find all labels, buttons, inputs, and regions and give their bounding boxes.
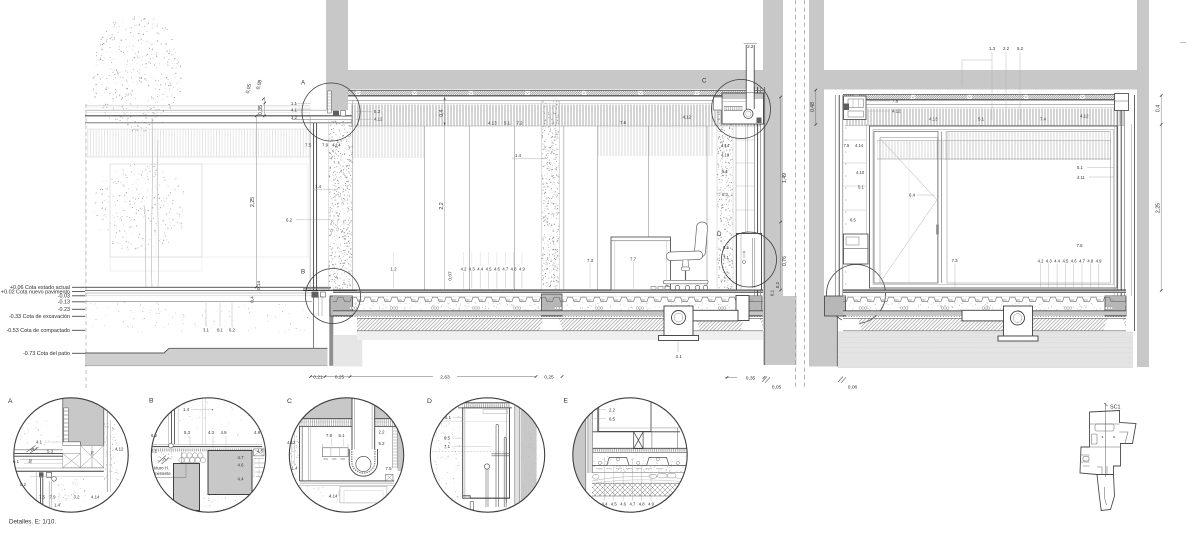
svg-text:0,21: 0,21 bbox=[313, 375, 323, 381]
svg-text:1,49: 1,49 bbox=[782, 173, 788, 183]
svg-text:E: E bbox=[564, 398, 569, 405]
svg-text:4.10: 4.10 bbox=[721, 153, 730, 158]
svg-text:4.8: 4.8 bbox=[1087, 258, 1093, 263]
svg-text:4.4: 4.4 bbox=[477, 266, 483, 271]
svg-text:3.1: 3.1 bbox=[203, 328, 209, 333]
svg-text:0,2: 0,2 bbox=[775, 281, 780, 288]
svg-text:3.2: 3.2 bbox=[74, 495, 81, 500]
svg-text:0,4: 0,4 bbox=[439, 110, 445, 117]
svg-text:5.3: 5.3 bbox=[184, 430, 191, 435]
svg-text:4.5: 4.5 bbox=[257, 448, 264, 453]
svg-text:4.13: 4.13 bbox=[488, 121, 497, 126]
svg-text:4.9: 4.9 bbox=[519, 266, 525, 271]
svg-text:6.2: 6.2 bbox=[229, 328, 235, 333]
svg-text:7.7: 7.7 bbox=[630, 257, 637, 262]
svg-text:0,14: 0,14 bbox=[256, 281, 262, 291]
svg-text:5.3: 5.3 bbox=[374, 109, 381, 114]
svg-text:7.1: 7.1 bbox=[444, 444, 451, 449]
svg-text:4.9: 4.9 bbox=[221, 430, 228, 435]
svg-text:1.4: 1.4 bbox=[515, 153, 522, 158]
svg-text:4.7: 4.7 bbox=[1079, 258, 1085, 263]
svg-text:0,25: 0,25 bbox=[335, 375, 345, 381]
svg-text:4.12: 4.12 bbox=[374, 117, 383, 122]
svg-text:4.6: 4.6 bbox=[620, 501, 626, 506]
svg-text:6.3: 6.3 bbox=[722, 192, 728, 197]
svg-text:C: C bbox=[702, 78, 707, 85]
svg-text:4.1: 4.1 bbox=[36, 440, 43, 445]
svg-text:5.1: 5.1 bbox=[858, 185, 864, 190]
svg-text:4.7: 4.7 bbox=[502, 266, 508, 271]
svg-text:D: D bbox=[427, 398, 432, 405]
svg-text:0,35: 0,35 bbox=[258, 105, 264, 115]
svg-text:4.3: 4.3 bbox=[208, 430, 215, 435]
svg-text:5.1: 5.1 bbox=[504, 121, 511, 126]
svg-text:6.5: 6.5 bbox=[444, 436, 451, 441]
svg-text:2,2: 2,2 bbox=[439, 202, 445, 209]
svg-text:7.2: 7.2 bbox=[517, 121, 524, 126]
svg-text:Detalles. E: 1/10.: Detalles. E: 1/10. bbox=[9, 519, 56, 526]
svg-text:7.6: 7.6 bbox=[620, 120, 627, 125]
svg-text:2.1: 2.1 bbox=[676, 354, 683, 359]
svg-text:2,63: 2,63 bbox=[440, 375, 450, 381]
svg-text:4.8: 4.8 bbox=[639, 501, 645, 506]
svg-text:7.3: 7.3 bbox=[587, 258, 594, 263]
svg-text:7.3: 7.3 bbox=[952, 258, 959, 263]
svg-text:4.6: 4.6 bbox=[1071, 258, 1077, 263]
svg-text:7.6: 7.6 bbox=[1077, 243, 1084, 248]
svg-text:4.3: 4.3 bbox=[469, 266, 475, 271]
svg-text:2.2: 2.2 bbox=[609, 407, 616, 412]
svg-text:4.2: 4.2 bbox=[461, 266, 467, 271]
svg-text:0,4: 0,4 bbox=[250, 296, 256, 303]
svg-text:7.5: 7.5 bbox=[305, 143, 312, 148]
svg-text:4.9: 4.9 bbox=[648, 501, 654, 506]
svg-text:0,4: 0,4 bbox=[1156, 105, 1162, 112]
svg-text:1.2: 1.2 bbox=[391, 267, 398, 272]
svg-text:0,07: 0,07 bbox=[448, 271, 454, 281]
svg-text:7.4: 7.4 bbox=[1040, 117, 1047, 122]
svg-text:2,25: 2,25 bbox=[1156, 203, 1162, 213]
svg-text:1.4: 1.4 bbox=[315, 184, 322, 189]
svg-text:4.9: 4.9 bbox=[1096, 258, 1102, 263]
svg-text:B: B bbox=[149, 398, 154, 405]
svg-text:4.12: 4.12 bbox=[683, 115, 692, 120]
svg-text:-0.53 Cota de compactado: -0.53 Cota de compactado bbox=[6, 328, 70, 334]
svg-text:2.2: 2.2 bbox=[747, 44, 754, 49]
svg-text:0,1: 0,1 bbox=[770, 289, 775, 296]
svg-text:6.2: 6.2 bbox=[286, 218, 293, 223]
svg-text:4.11: 4.11 bbox=[1077, 175, 1086, 180]
svg-text:5.2: 5.2 bbox=[379, 441, 386, 446]
svg-text:2,25: 2,25 bbox=[250, 197, 256, 207]
svg-text:7.9: 7.9 bbox=[50, 495, 57, 500]
svg-text:2.2: 2.2 bbox=[1003, 46, 1010, 51]
svg-text:4.14: 4.14 bbox=[721, 143, 730, 148]
svg-text:3.2: 3.2 bbox=[291, 115, 298, 120]
svg-text:1.3: 1.3 bbox=[989, 46, 996, 51]
svg-text:4.7: 4.7 bbox=[238, 455, 245, 460]
svg-text:1.1: 1.1 bbox=[291, 101, 298, 106]
svg-text:0,35: 0,35 bbox=[746, 376, 756, 382]
svg-text:4.8: 4.8 bbox=[254, 430, 261, 435]
svg-text:1.4: 1.4 bbox=[54, 503, 61, 508]
svg-text:7.5: 7.5 bbox=[39, 495, 46, 500]
svg-text:-0.23: -0.23 bbox=[58, 307, 70, 313]
svg-text:4.1: 4.1 bbox=[291, 108, 298, 113]
svg-text:0,76: 0,76 bbox=[782, 256, 788, 266]
svg-text:7.8: 7.8 bbox=[892, 99, 899, 104]
svg-text:7.8: 7.8 bbox=[326, 433, 333, 438]
svg-text:4.14: 4.14 bbox=[91, 495, 100, 500]
svg-text:4.2: 4.2 bbox=[1038, 258, 1044, 263]
svg-text:4.14: 4.14 bbox=[329, 494, 338, 499]
svg-text:4.10: 4.10 bbox=[856, 170, 865, 175]
svg-text:0,25: 0,25 bbox=[544, 375, 554, 381]
svg-text:4.5: 4.5 bbox=[1062, 258, 1068, 263]
svg-text:4.7: 4.7 bbox=[629, 501, 635, 506]
svg-text:6.5: 6.5 bbox=[850, 218, 856, 223]
svg-text:7.5: 7.5 bbox=[844, 143, 850, 148]
svg-text:0,48: 0,48 bbox=[810, 102, 816, 112]
svg-text:B: B bbox=[301, 269, 305, 276]
svg-text:6.1: 6.1 bbox=[217, 328, 223, 333]
svg-text:5.1: 5.1 bbox=[339, 433, 346, 438]
svg-text:5.1: 5.1 bbox=[978, 117, 985, 122]
svg-text:1.4: 1.4 bbox=[183, 407, 190, 412]
svg-text:0,06: 0,06 bbox=[848, 385, 858, 391]
svg-text:5.3: 5.3 bbox=[47, 448, 54, 453]
svg-text:4.6: 4.6 bbox=[238, 462, 245, 467]
svg-text:existente: existente bbox=[154, 471, 171, 476]
svg-text:4.12: 4.12 bbox=[115, 447, 124, 452]
svg-text:7.9: 7.9 bbox=[322, 143, 329, 148]
svg-text:5.2: 5.2 bbox=[1017, 46, 1024, 51]
svg-text:4.12: 4.12 bbox=[1080, 114, 1089, 119]
svg-text:5.1: 5.1 bbox=[1077, 165, 1083, 170]
svg-text:4.5: 4.5 bbox=[486, 266, 492, 271]
svg-text:-0.13: -0.13 bbox=[58, 300, 70, 306]
svg-text:D: D bbox=[717, 231, 722, 238]
svg-text:0,05: 0,05 bbox=[772, 385, 782, 391]
svg-text:4.3: 4.3 bbox=[1046, 258, 1052, 263]
svg-text:Muro H.: Muro H. bbox=[154, 466, 169, 471]
svg-text:5.1: 5.1 bbox=[722, 169, 728, 174]
svg-text:-0.73 Cota del patio: -0.73 Cota del patio bbox=[23, 351, 70, 357]
svg-text:4.4: 4.4 bbox=[1054, 258, 1060, 263]
svg-text:A: A bbox=[8, 398, 13, 405]
svg-text:6.4: 6.4 bbox=[909, 193, 916, 198]
svg-text:2.2: 2.2 bbox=[379, 429, 386, 434]
svg-text:6.5: 6.5 bbox=[609, 416, 616, 421]
svg-text:4.4: 4.4 bbox=[238, 476, 245, 481]
svg-text:4.14: 4.14 bbox=[332, 143, 341, 148]
svg-text:4.13: 4.13 bbox=[929, 117, 938, 122]
svg-text:SC1: SC1 bbox=[1110, 405, 1121, 411]
svg-text:C: C bbox=[287, 398, 292, 405]
svg-text:-0.33 Cota de excavación: -0.33 Cota de excavación bbox=[9, 314, 70, 320]
svg-text:7.1: 7.1 bbox=[723, 255, 729, 260]
svg-text:4.12: 4.12 bbox=[892, 109, 901, 114]
svg-text:4.6: 4.6 bbox=[494, 266, 500, 271]
svg-text:4.5: 4.5 bbox=[611, 501, 617, 506]
svg-text:4.8: 4.8 bbox=[511, 266, 517, 271]
svg-text:7.5: 7.5 bbox=[386, 466, 393, 471]
svg-text:1.4: 1.4 bbox=[292, 466, 299, 471]
svg-text:4.14: 4.14 bbox=[855, 143, 864, 148]
